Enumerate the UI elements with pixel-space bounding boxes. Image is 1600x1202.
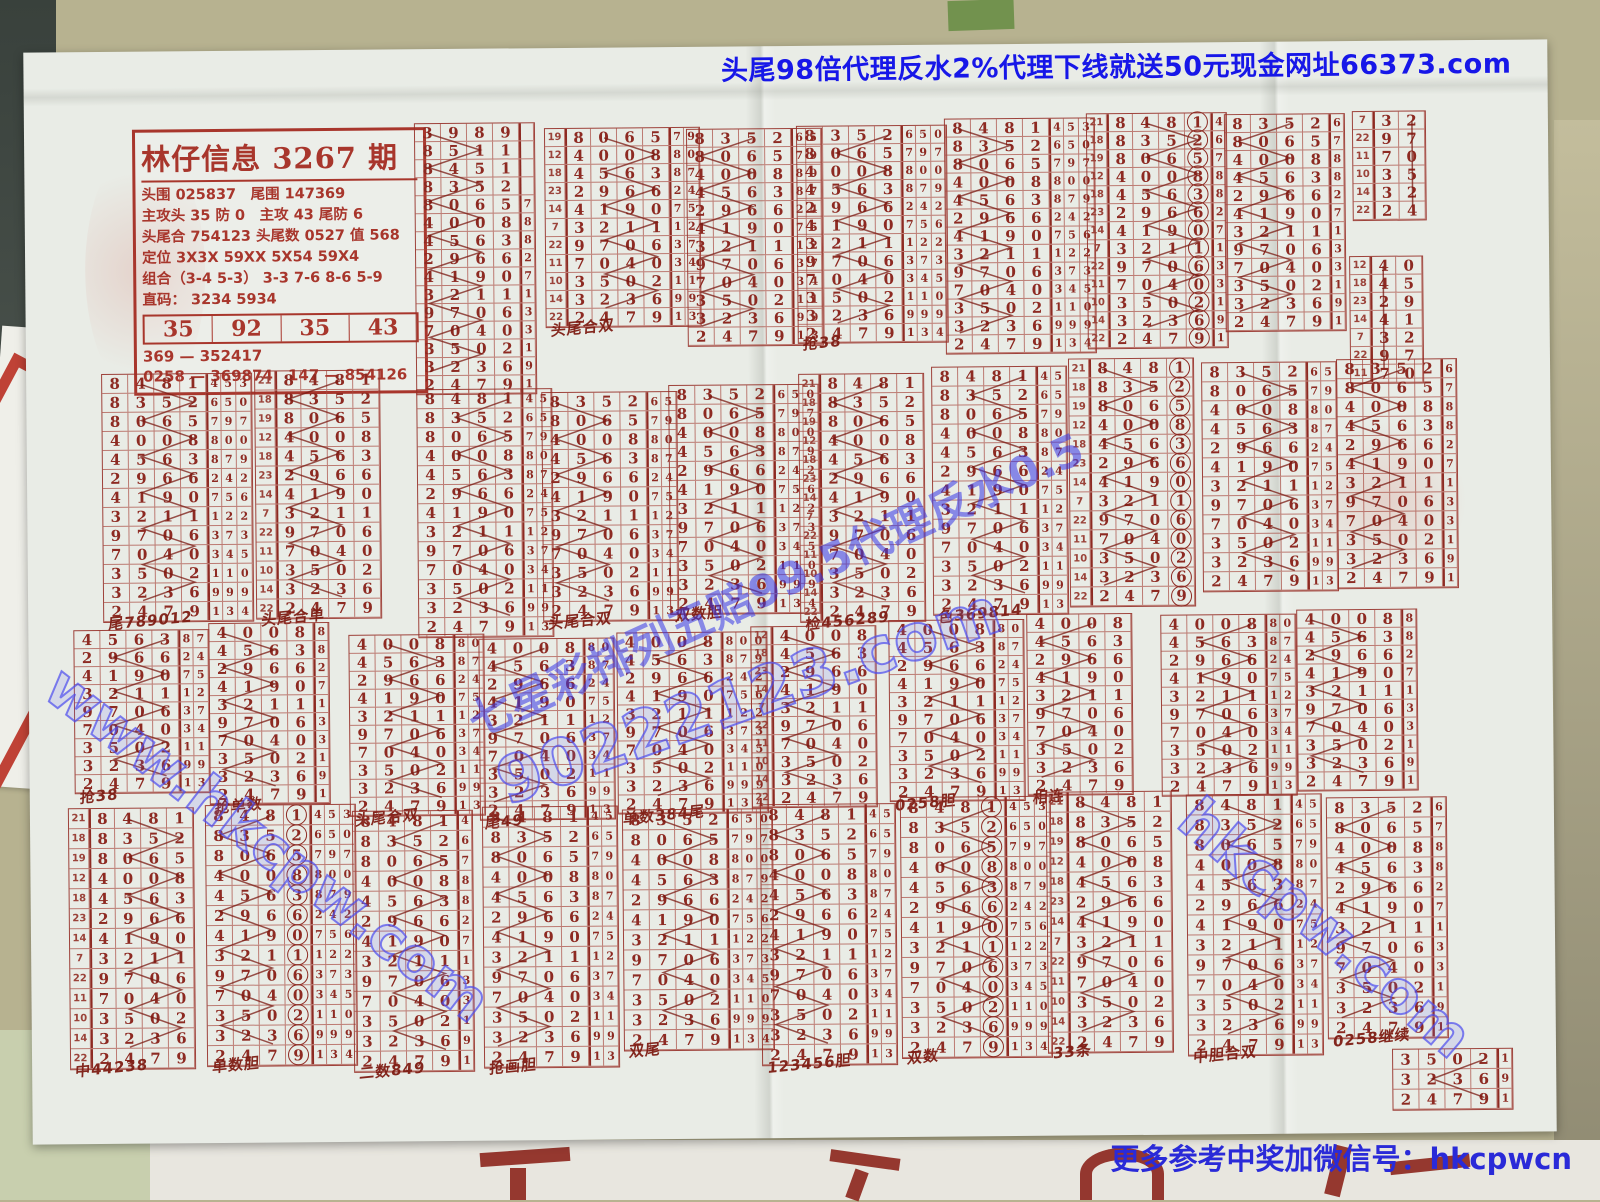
draw-row: 1432369	[1089, 311, 1228, 330]
digit-cell: 4	[1095, 1032, 1121, 1051]
digit-cell: 6	[1282, 552, 1308, 570]
digit-cell: 3	[1251, 115, 1277, 132]
digit-cell: 4	[1297, 628, 1323, 645]
draw-row: 232966	[256, 466, 380, 486]
digit-cell: 6	[155, 450, 181, 468]
digit-cell-small: 7	[1009, 710, 1024, 727]
digit-cell-small: 1	[180, 774, 195, 791]
digit-cell-small: 9	[1443, 549, 1458, 567]
draw-row: 70403	[1338, 511, 1457, 531]
digit-cell: 8	[418, 428, 444, 446]
digit-cell: 4	[715, 327, 741, 344]
digit-cell: 1	[288, 695, 314, 712]
digit-cell: 0	[1116, 530, 1142, 548]
digit-cell: 7	[1445, 1089, 1471, 1108]
digit-cell: 5	[101, 739, 127, 756]
digit-cell: 0	[697, 538, 723, 556]
digit-cell: 9	[1298, 700, 1324, 717]
digit-cell: 4	[1107, 186, 1133, 203]
digit-cell-small: 9	[738, 776, 753, 793]
digit-cell: 5	[849, 126, 875, 143]
digit-cell: 4	[1120, 972, 1146, 991]
digit-cell: 1	[1376, 682, 1402, 699]
draw-row: 419075	[75, 666, 209, 685]
digit-cell: 4	[1213, 795, 1239, 814]
digit-cell: 0	[798, 735, 824, 752]
draw-row: 321112	[543, 506, 677, 526]
digit-cell: 8	[945, 119, 971, 136]
digit-cell: 8	[1327, 798, 1353, 817]
row-sum-label: 10	[1353, 166, 1373, 183]
digit-cell: 1	[1024, 245, 1050, 262]
digit-cell: 2	[1364, 474, 1390, 492]
digit-cell: 0	[713, 165, 739, 182]
digit-cell: 0	[128, 413, 154, 431]
digit-cell: 0	[1160, 258, 1186, 275]
digit-cell-small: 9	[521, 357, 536, 374]
digit-cell: 2	[101, 757, 127, 774]
draw-row: 704034	[480, 747, 614, 766]
digit-cell: 5	[839, 844, 865, 863]
digit-cell: 3	[671, 777, 697, 794]
digit-cell: 1	[876, 234, 902, 251]
draw-row: 35021	[417, 339, 536, 358]
digit-cell: 9	[566, 237, 592, 254]
digit-cell: 7	[350, 744, 376, 761]
draw-row: 4563879	[670, 442, 819, 462]
draw-row: 1170403	[1088, 275, 1227, 294]
digit-cell: 4	[740, 273, 766, 290]
circled-digit: 0	[1170, 528, 1191, 549]
digit-cell-small: 9	[670, 290, 685, 307]
digit-cell: 0	[1228, 382, 1254, 400]
digit-cell: 9	[788, 905, 814, 924]
digit-cell: 1	[470, 523, 496, 541]
digit-cell: 0	[824, 270, 850, 287]
digit-cell-small: 9	[867, 1024, 882, 1043]
digit-cell: 3	[407, 1031, 433, 1050]
row-sum-label: 14	[1070, 473, 1090, 491]
draw-row: 296624	[1188, 894, 1322, 915]
digit-cell-small: 6	[1005, 817, 1020, 836]
digit-cell: 8	[469, 390, 495, 408]
draw-row: 3211122	[624, 929, 773, 950]
digit-cell: 6	[535, 847, 561, 866]
digit-cell: 0	[850, 680, 876, 697]
digit-cell: 8	[623, 830, 649, 849]
digit-cell: 6	[262, 659, 288, 676]
draw-row: 970637	[1188, 954, 1322, 975]
digit-cell: 4	[618, 651, 644, 668]
digit-cell: 6	[1168, 453, 1194, 471]
draw-row: 456387	[933, 443, 1067, 463]
digit-cell: 6	[1277, 169, 1303, 186]
draw-row: 35021	[210, 749, 329, 768]
digit-cell: 0	[998, 263, 1024, 280]
draw-row: 296624	[543, 468, 677, 488]
digit-cell-small: 8	[454, 653, 469, 670]
digit-cell: 4	[946, 191, 972, 208]
digit-cell: 0	[1106, 722, 1132, 739]
digit-cell: 5	[1277, 115, 1303, 132]
digit-cell: 1	[644, 218, 670, 235]
draw-row: 29662	[1225, 186, 1344, 205]
digit-cell: 0	[899, 545, 925, 563]
digit-cell: 5	[441, 142, 467, 159]
digit-cell-small: 9	[459, 1031, 474, 1050]
draw-row: 73211	[752, 698, 876, 717]
draw-row: 419075	[418, 503, 552, 523]
digit-cell: 2	[645, 777, 671, 794]
row-sum-label: 18	[1070, 435, 1090, 453]
number-grid-block: 8481458352658065794008804563872966244190…	[760, 803, 898, 1066]
digit-cell-small: 7	[1307, 457, 1322, 475]
digit-cell: 3	[1339, 550, 1365, 568]
digit-cell: 1	[1240, 935, 1266, 954]
digit-cell-small: 3	[882, 1044, 897, 1063]
digit-cell-small: 1	[458, 951, 473, 970]
digit-cell: 9	[569, 469, 595, 487]
digit-cell: 2	[749, 556, 775, 574]
number-grid-block: 8352650806579740088004563879296624241907…	[622, 808, 775, 1051]
digit-cell: 1	[233, 926, 259, 945]
draw-row: 400880	[483, 867, 617, 888]
number-grid-block: 4563872966244190753211129706377040343502…	[73, 629, 210, 794]
digit-cell-small: 3	[774, 518, 789, 536]
digit-cell: 3	[898, 450, 924, 468]
digit-cell-small: 3	[775, 537, 790, 555]
digit-cell-small: 1	[1330, 222, 1345, 239]
digit-cell: 4	[142, 988, 168, 1007]
digit-cell-small: 1	[867, 1004, 882, 1023]
row-sum-label: 23	[1350, 293, 1370, 310]
digit-cell: 1	[496, 522, 522, 540]
digit-cell: 3	[355, 1032, 381, 1051]
digit-cell: 5	[1280, 381, 1306, 399]
digit-cell: 2	[1010, 386, 1036, 404]
digit-cell: 5	[507, 765, 533, 782]
digit-cell: 0	[1278, 241, 1304, 258]
digit-cell: 3	[481, 765, 507, 782]
digit-cell: 1	[442, 268, 468, 285]
digit-cell: 2	[1091, 587, 1117, 605]
digit-cell: 4	[1161, 634, 1187, 651]
digit-cell: 3	[1298, 736, 1324, 753]
digit-cell-small: 9	[194, 756, 209, 773]
digit-cell: 7	[1143, 587, 1169, 605]
digit-cell: 6	[428, 725, 454, 742]
digit-cell: 0	[696, 424, 722, 442]
digit-cell: 0	[1186, 275, 1212, 292]
digit-cell: 5	[747, 404, 773, 422]
digit-cell: 4	[349, 636, 375, 653]
digit-cell: 2	[563, 1007, 589, 1026]
digit-cell-small: 9	[880, 844, 895, 863]
digit-cell: 9	[1350, 664, 1376, 681]
digit-cell: 0	[428, 689, 454, 706]
digit-cell: 0	[1239, 855, 1265, 874]
digit-cell: 5	[444, 466, 470, 484]
digit-cell-small: 5	[1307, 914, 1322, 933]
draw-row: 4190756	[946, 226, 1095, 245]
digit-cell: 7	[376, 725, 402, 742]
digit-cell: 1	[431, 811, 457, 830]
digit-cell: 0	[670, 759, 696, 776]
digit-cell-small: 4	[222, 469, 237, 487]
digit-cell: 2	[237, 768, 263, 785]
digit-cell: 8	[483, 807, 509, 826]
digit-cell: 6	[536, 887, 562, 906]
circled-digit: 9	[1171, 585, 1192, 606]
digit-cell: 6	[739, 147, 765, 164]
digit-cell-small: 4	[193, 648, 208, 665]
digit-cell: 4	[1189, 777, 1215, 794]
digit-cell: 2	[207, 906, 233, 925]
digit-cell: 0	[402, 725, 428, 742]
row-sum-label: 7	[256, 504, 276, 522]
digit-cell: 7	[1116, 511, 1142, 529]
digit-cell: 5	[714, 291, 740, 308]
digit-cell: 6	[1349, 646, 1375, 663]
digit-cell: 9	[850, 216, 876, 233]
digit-cell: 0	[644, 200, 670, 217]
digit-cell: 3	[618, 759, 644, 776]
draw-row: 97063	[416, 303, 535, 322]
draw-row: 806579	[483, 847, 617, 868]
digit-cell: 6	[1389, 417, 1415, 435]
draw-row: 7040345	[624, 969, 773, 990]
digit-cell: 4	[771, 627, 797, 644]
digit-cell: 4	[814, 985, 840, 1004]
draw-row: 2966242	[670, 461, 819, 481]
digit-cell: 2	[846, 507, 872, 525]
digit-cell-small: 4	[603, 907, 618, 926]
digit-cell: 9	[676, 910, 702, 929]
digit-cell: 6	[748, 518, 774, 536]
digit-cell: 9	[1241, 777, 1267, 794]
digit-cell: 5	[1167, 396, 1193, 414]
digit-cell: 7	[798, 271, 824, 288]
digit-cell: 0	[649, 850, 675, 869]
digit-cell: 3	[765, 183, 791, 200]
draw-row: 9706373	[624, 949, 773, 970]
digit-cell: 3	[210, 750, 236, 767]
digit-cell-small: 3	[521, 321, 536, 338]
digit-cell-small: 8	[721, 632, 736, 649]
digit-cell: 4	[617, 633, 643, 650]
digit-cell: 4	[596, 544, 622, 562]
digit-cell: 0	[1213, 855, 1239, 874]
digit-cell: 2	[841, 1004, 867, 1023]
circled-digit: 1	[982, 936, 1003, 957]
digit-cell: 4	[210, 678, 236, 695]
digit-cell-small: 3	[314, 713, 329, 730]
digit-cell-small: 1	[774, 499, 789, 517]
digit-cell: 6	[851, 770, 877, 787]
digit-cell: 3	[825, 770, 851, 787]
number-grid-block: 1980657912400880184563872329662414419075…	[544, 127, 702, 328]
draw-row: 970637	[484, 967, 618, 988]
row-sum-label: 10	[1071, 549, 1091, 567]
digit-cell: 8	[1415, 397, 1441, 415]
digit-cell: 4	[933, 425, 959, 443]
digit-cell-small: 3	[223, 602, 238, 620]
digit-cell: 3	[494, 231, 520, 248]
digit-cell: 3	[207, 946, 233, 965]
digit-cell: 0	[1024, 281, 1050, 298]
draw-row: 117040	[257, 542, 381, 562]
digit-cell: 4	[207, 926, 233, 945]
digit-cell: 6	[1240, 705, 1266, 722]
draw-row: 2966242	[207, 905, 356, 926]
digit-cell: 6	[621, 468, 647, 486]
digit-cell: 8	[542, 393, 568, 411]
draw-row: 835265	[932, 386, 1066, 406]
digit-cell: 2	[1328, 878, 1354, 897]
draw-row: 184563	[1047, 872, 1171, 893]
draw-row: 4563879	[946, 190, 1095, 209]
draw-row: 456387	[543, 449, 677, 469]
digit-cell: 8	[483, 847, 509, 866]
digit-cell: 0	[876, 216, 902, 233]
digit-cell: 2	[968, 746, 994, 763]
draw-row: 97063	[1338, 492, 1457, 512]
digit-cell: 2	[1095, 1012, 1121, 1031]
digit-cell: 3	[1226, 295, 1252, 312]
draw-row: 4008800	[103, 431, 252, 451]
digit-cell-small: 8	[207, 431, 222, 449]
digit-cell: 6	[153, 702, 179, 719]
digit-cell: 3	[741, 309, 767, 326]
digit-cell: 7	[592, 236, 618, 253]
digit-cell-small: 5	[742, 809, 757, 828]
digit-cell: 0	[850, 252, 876, 269]
digit-cell: 3	[276, 504, 302, 522]
digit-cell-small: 6	[521, 408, 536, 426]
digit-cell-small: 3	[994, 710, 1009, 727]
digit-cell-small: 3	[1038, 538, 1053, 556]
draw-row: 419075	[1188, 914, 1322, 935]
digit-cell: 8	[275, 390, 301, 408]
draw-row: 1845	[1350, 274, 1422, 293]
digit-cell: 4	[670, 424, 696, 442]
draw-row: 29662	[210, 659, 329, 678]
draw-row: 8352650	[901, 817, 1050, 838]
digit-cell: 5	[650, 990, 676, 1009]
draw-row: 18456387	[545, 164, 699, 183]
digit-cell-small: 0	[1321, 400, 1336, 418]
row-sum-label: 22	[546, 237, 566, 254]
digit-cell: 0	[570, 545, 596, 563]
digit-cell: 4	[973, 335, 999, 352]
digit-cell: 2	[825, 306, 851, 323]
digit-cell: 0	[840, 984, 866, 1003]
digit-cell-small: 1	[1051, 335, 1066, 352]
digit-cell: 6	[849, 180, 875, 197]
digit-cell: 9	[543, 526, 569, 544]
draw-row: 323699	[481, 783, 615, 802]
digit-cell: 2	[1147, 992, 1173, 1011]
digit-cell-small: 1	[1022, 997, 1037, 1016]
digit-cell: 6	[468, 250, 494, 267]
digit-cell: 6	[670, 651, 696, 668]
digit-cell: 8	[167, 868, 193, 887]
digit-cell: 9	[444, 485, 470, 503]
digit-cell: 7	[821, 546, 847, 564]
digit-cell: 9	[1373, 130, 1399, 147]
digit-cell: 4	[536, 987, 562, 1006]
digit-cell: 8	[275, 409, 301, 427]
draw-row: 2329662	[1088, 203, 1227, 222]
draw-row: 184563	[800, 450, 924, 470]
digit-cell: 2	[74, 649, 100, 666]
digit-cell-small: 3	[454, 743, 469, 760]
row-sum-label: 14	[1089, 312, 1109, 329]
digit-cell: 9	[1396, 292, 1422, 309]
digit-cell: 9	[1169, 586, 1195, 604]
digit-cell-small: 5	[881, 924, 896, 943]
digit-cell-small: 3	[1066, 334, 1081, 351]
digit-cell: 4	[1328, 898, 1354, 917]
digit-cell: 8	[89, 809, 115, 828]
circled-digit: 1	[1169, 357, 1190, 378]
digit-cell: 0	[723, 556, 749, 574]
digit-cell-small: 4	[310, 805, 325, 824]
draw-row: 848145	[761, 804, 895, 825]
digit-cell: 5	[675, 810, 701, 829]
row-sum-label: 10	[1049, 993, 1069, 1012]
digit-cell-small	[519, 141, 534, 158]
digit-cell: 7	[946, 281, 972, 298]
digit-cell: 7	[1256, 572, 1282, 590]
digit-cell-small: 3	[1266, 723, 1281, 740]
digit-cell-small: 3	[1006, 977, 1021, 996]
digit-cell: 6	[941, 638, 967, 655]
digit-cell: 5	[644, 651, 670, 668]
digit-cell: 6	[285, 965, 311, 984]
digit-cell-small: 2	[647, 468, 662, 486]
digit-cell: 0	[233, 986, 259, 1005]
digit-cell-small: 2	[314, 659, 329, 676]
digit-cell: 4	[1400, 201, 1426, 218]
digit-cell: 0	[1363, 379, 1389, 397]
digit-cell-small: 4	[1049, 119, 1064, 136]
handwritten-annotation: 双数	[907, 1044, 940, 1068]
digit-cell: 1	[493, 159, 519, 176]
draw-row: 124008	[256, 428, 380, 448]
digit-cell: 8	[1303, 150, 1329, 167]
digit-cell: 0	[1304, 258, 1330, 275]
digit-cell-small: 1	[902, 288, 917, 305]
digit-cell: 5	[303, 561, 329, 579]
draw-row: 45638	[416, 231, 535, 250]
digit-cell-small: 9	[1306, 834, 1321, 853]
digit-cell: 5	[180, 412, 206, 430]
draw-row: 218481	[1047, 792, 1171, 813]
digit-cell: 3	[1091, 549, 1117, 567]
digit-cell: 7	[210, 732, 236, 749]
draw-row: 2297063	[1088, 257, 1227, 276]
digit-cell: 3	[484, 947, 510, 966]
digit-cell-small: 1	[729, 1029, 744, 1048]
digit-cell: 5	[953, 817, 979, 836]
digit-cell: 2	[1028, 651, 1054, 668]
digit-cell: 2	[839, 824, 865, 843]
digit-cell: 2	[651, 1010, 677, 1029]
digit-cell: 6	[622, 582, 648, 600]
digit-cell: 6	[536, 907, 562, 926]
draw-row: 350211	[419, 579, 553, 599]
